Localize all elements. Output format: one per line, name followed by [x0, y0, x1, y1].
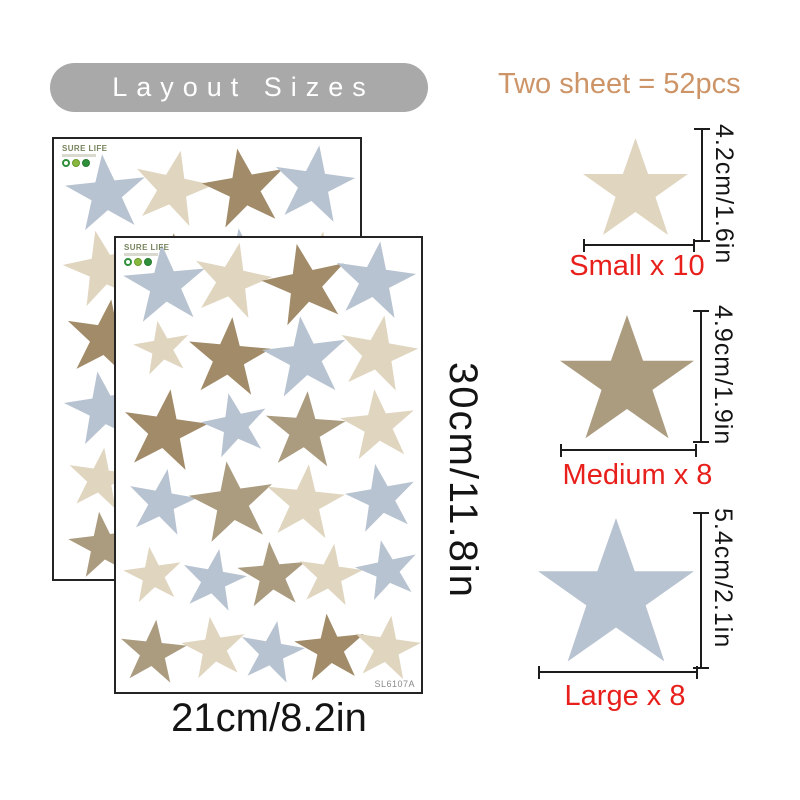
star-sticker-beige — [178, 612, 250, 681]
size-spec-large: 5.4cm/2.1in Large x 8 — [535, 508, 795, 723]
width-measure-line — [560, 449, 697, 451]
height-measure-line — [700, 310, 702, 443]
star-sticker-brown — [291, 610, 368, 684]
medium-star — [560, 315, 694, 442]
star-sticker-beige — [294, 539, 366, 608]
cert-dot-icon — [134, 258, 142, 266]
star-sticker-blue — [330, 236, 420, 322]
brand-tagline-rule — [62, 154, 96, 157]
star-sticker-blue — [269, 140, 359, 226]
cert-dot-icon — [72, 159, 80, 167]
star-sticker-blue — [196, 386, 274, 461]
star-sticker-beige — [262, 460, 347, 542]
star-sticker-beige — [186, 236, 278, 323]
star-sticker-blue — [351, 534, 423, 605]
star-sticker-blue — [235, 616, 309, 687]
brand-name: SURE LIFE — [124, 244, 169, 252]
star-sticker-beige — [130, 316, 194, 378]
brand-logo: SURE LIFE — [62, 145, 107, 167]
large-star — [538, 518, 694, 666]
small-dimension-label: 4.2cm/1.6in — [709, 124, 738, 264]
cert-dot-icon — [82, 159, 90, 167]
small-star — [583, 138, 688, 238]
certification-dots — [62, 159, 107, 167]
star-sticker-beige — [127, 143, 219, 232]
height-measure-line — [701, 128, 703, 242]
star-sticker-tan — [263, 388, 348, 469]
medium-quantity-label: Medium x 8 — [545, 459, 730, 492]
large-quantity-label: Large x 8 — [535, 680, 715, 713]
star-sticker-beige — [350, 611, 423, 683]
sheet-count-text: Two sheet = 52pcs — [498, 68, 741, 101]
star-sticker-tan — [235, 539, 308, 610]
product-size-infographic: Layout Sizes Two sheet = 52pcs SURE LIFE… — [0, 0, 800, 800]
star-sticker-tan — [185, 456, 279, 547]
width-measure-line — [538, 671, 698, 673]
page-title: Layout Sizes — [103, 72, 375, 103]
star-sticker-brown — [197, 142, 291, 233]
width-measure-line — [583, 244, 695, 246]
medium-dimension-label: 4.9cm/1.9in — [708, 305, 737, 445]
large-dimension-label: 5.4cm/2.1in — [708, 508, 737, 648]
star-sticker-tan — [116, 616, 188, 686]
sheet-height-label: 30cm/11.8in — [440, 362, 485, 599]
brand-logo: SURE LIFE — [124, 244, 169, 266]
star-sticker-brown — [185, 314, 273, 399]
cert-dot-icon — [144, 258, 152, 266]
star-sticker-beige — [333, 308, 423, 394]
sticker-sheet-front: SURE LIFE SL6107A — [114, 236, 423, 694]
star-sticker-blue — [341, 458, 422, 536]
sheet-code: SL6107A — [374, 679, 415, 689]
size-spec-small: 4.2cm/1.6in Small x 10 — [555, 120, 790, 290]
brand-tagline-rule — [124, 253, 158, 256]
star-sticker-blue — [123, 463, 201, 539]
size-spec-medium: 4.9cm/1.9in Medium x 8 — [545, 303, 795, 503]
star-sticker-blue — [177, 543, 251, 614]
title-pill: Layout Sizes — [50, 63, 428, 112]
brand-name: SURE LIFE — [62, 145, 107, 153]
star-sticker-brown — [256, 236, 355, 331]
cert-dot-icon — [62, 159, 70, 167]
star-sticker-beige — [338, 385, 419, 462]
star-sticker-brown — [118, 383, 212, 474]
star-sticker-blue — [259, 311, 352, 401]
small-quantity-label: Small x 10 — [547, 250, 727, 283]
cert-dot-icon — [124, 258, 132, 266]
sheet-width-label: 21cm/8.2in — [114, 696, 424, 741]
certification-dots — [124, 258, 169, 266]
height-measure-line — [700, 512, 702, 669]
star-grid-front — [116, 238, 421, 692]
star-sticker-beige — [120, 543, 185, 606]
